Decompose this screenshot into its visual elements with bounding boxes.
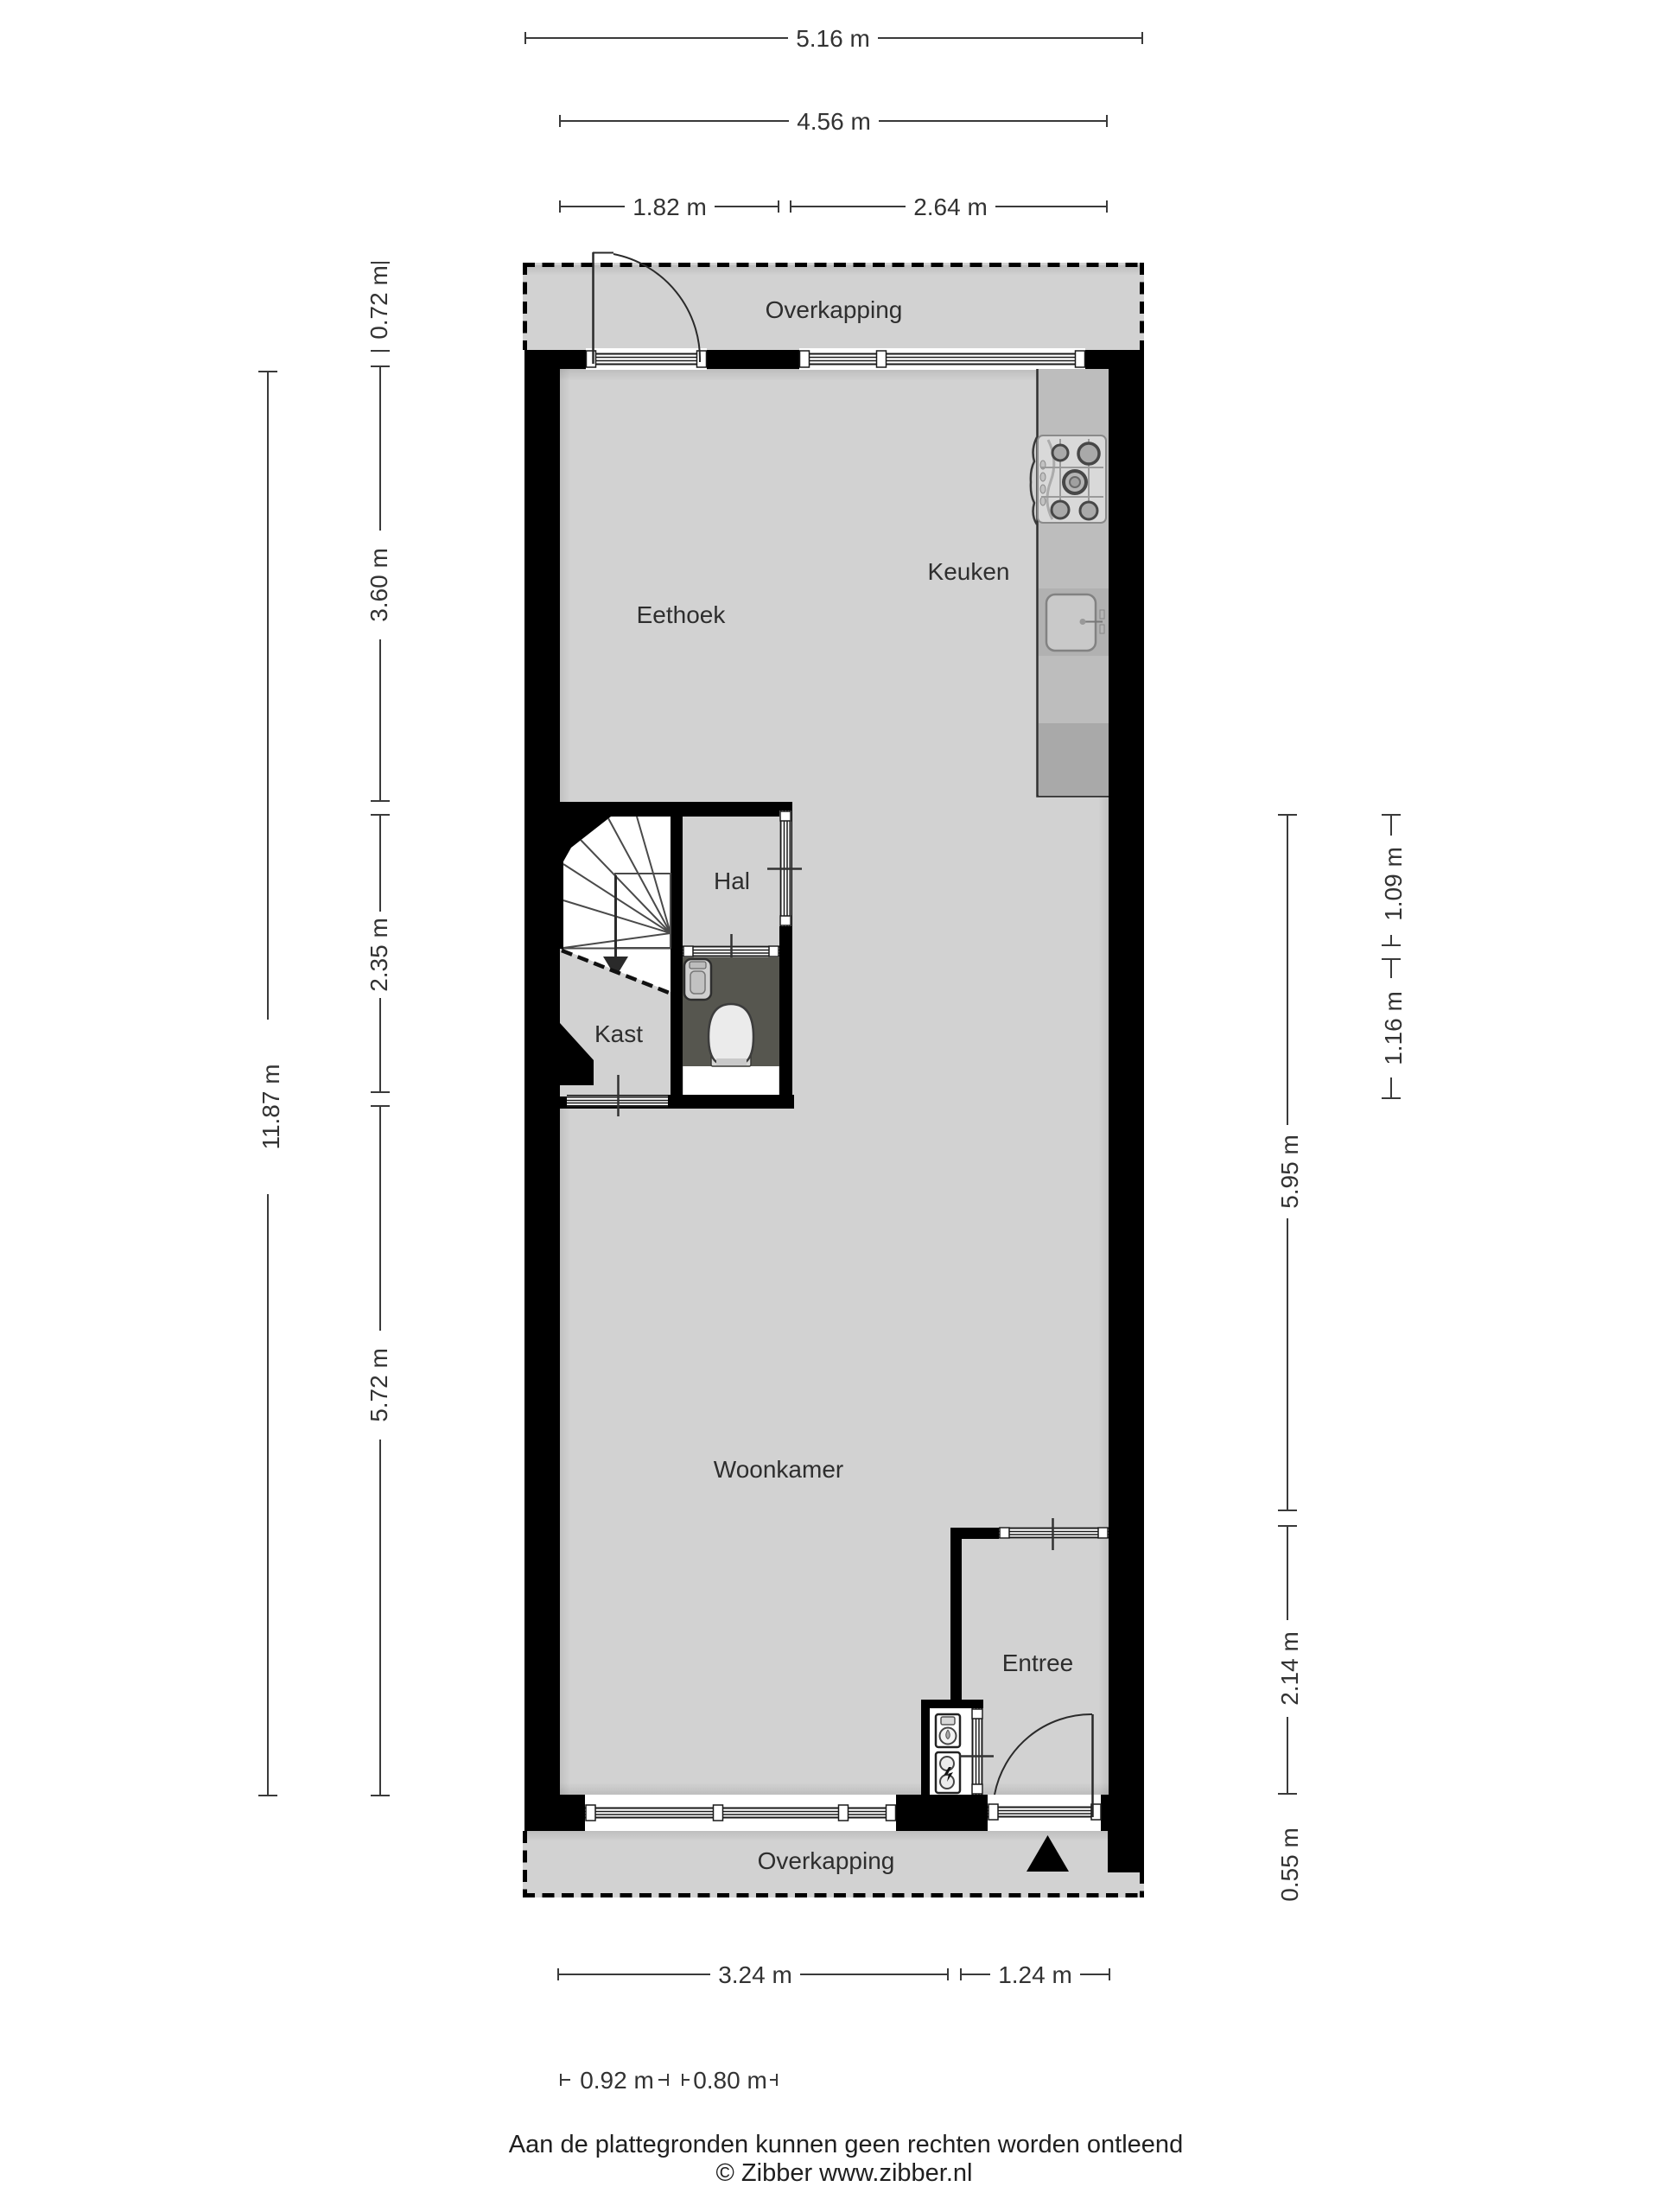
svg-text:0.55 m: 0.55 m	[1276, 1827, 1303, 1902]
svg-text:Woonkamer: Woonkamer	[714, 1456, 843, 1483]
svg-text:0.72 m: 0.72 m	[365, 265, 392, 340]
svg-text:1.24 m: 1.24 m	[998, 1961, 1072, 1988]
svg-text:2.14 m: 2.14 m	[1276, 1631, 1303, 1706]
svg-text:Eethoek: Eethoek	[637, 601, 727, 628]
svg-text:2.64 m: 2.64 m	[913, 194, 988, 220]
svg-text:Kast: Kast	[594, 1020, 643, 1047]
svg-text:1.82 m: 1.82 m	[632, 194, 707, 220]
svg-text:Overkapping: Overkapping	[758, 1847, 895, 1874]
svg-text:11.87 m: 11.87 m	[257, 1064, 284, 1149]
svg-text:Hal: Hal	[714, 868, 750, 894]
svg-text:Aan de plattegronden kunnen ge: Aan de plattegronden kunnen geen rechten…	[509, 2131, 1183, 2158]
svg-text:5.16 m: 5.16 m	[796, 25, 870, 52]
svg-text:Entree: Entree	[1002, 1649, 1074, 1676]
svg-text:5.72 m: 5.72 m	[365, 1348, 392, 1422]
svg-text:4.56 m: 4.56 m	[797, 108, 871, 135]
svg-text:© Zibber www.zibber.nl: © Zibber www.zibber.nl	[716, 2159, 973, 2187]
svg-text:Keuken: Keuken	[928, 558, 1010, 585]
svg-text:0.80 m: 0.80 m	[693, 2067, 767, 2094]
svg-text:Overkapping: Overkapping	[766, 296, 903, 323]
svg-text:1.16 m: 1.16 m	[1380, 991, 1407, 1065]
svg-text:3.60 m: 3.60 m	[365, 548, 392, 622]
svg-text:2.35 m: 2.35 m	[365, 918, 392, 992]
svg-text:3.24 m: 3.24 m	[718, 1961, 792, 1988]
svg-text:5.95 m: 5.95 m	[1276, 1135, 1303, 1209]
svg-text:0.92 m: 0.92 m	[580, 2067, 654, 2094]
svg-text:1.09 m: 1.09 m	[1380, 847, 1407, 921]
